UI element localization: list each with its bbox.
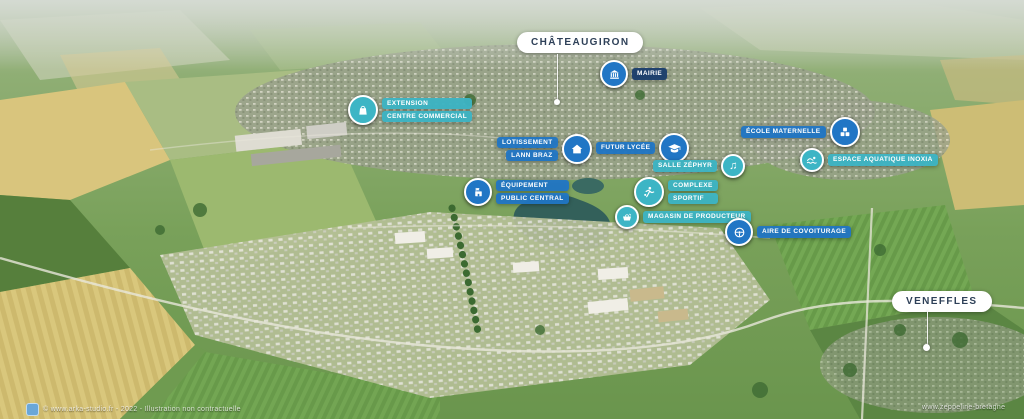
marker-espace-aquatique-inoxia: ESPACE AQUATIQUE INOXIA (800, 148, 938, 172)
aerial-masterplan-view: CHÂTEAUGIRON VENEFFLES EXTENSION CENTRE … (0, 0, 1024, 419)
marker-equipement-public-central: ÉQUIPEMENT PUBLIC CENTRAL (464, 178, 569, 206)
marker-extension-centre-commercial: EXTENSION CENTRE COMMERCIAL (348, 95, 472, 125)
place-label-text: CHÂTEAUGIRON (531, 37, 629, 48)
steering-wheel-icon (725, 218, 753, 246)
marker-label: SALLE ZÉPHYR (653, 160, 717, 171)
marker-label: PUBLIC CENTRAL (496, 193, 569, 204)
aerial-photo-background (0, 0, 1024, 419)
chateaugiron-pointer-line (557, 54, 558, 101)
swimmer-icon (800, 148, 824, 172)
marker-aire-de-covoiturage: AIRE DE COVOITURAGE (725, 218, 851, 246)
place-label-chateaugiron: CHÂTEAUGIRON (517, 32, 643, 53)
toy-blocks-icon (830, 117, 860, 147)
credit-left-text: © www.arka-studio.fr - 2022 - Illustrati… (43, 406, 241, 413)
marker-label: ÉCOLE MATERNELLE (741, 126, 826, 137)
credit-right-text: www.zeppeline-bretagne (922, 404, 1005, 411)
marker-salle-zephyr: SALLE ZÉPHYR ♫ (653, 154, 745, 178)
produce-basket-icon (615, 205, 639, 229)
marker-label: MAIRIE (632, 68, 667, 79)
marker-label: FUTUR LYCÉE (596, 142, 655, 153)
marker-label: EXTENSION (382, 98, 472, 109)
marker-label: CENTRE COMMERCIAL (382, 111, 472, 122)
marker-lotissement-lann-braz: LOTISSEMENT LANN BRAZ (497, 134, 592, 164)
place-label-text: VENEFFLES (906, 296, 978, 307)
athlete-icon (634, 177, 664, 207)
studio-logo (26, 403, 39, 416)
veneffles-pointer-dot (923, 344, 930, 351)
marker-label: COMPLEXE (668, 180, 718, 191)
shopping-bag-icon (348, 95, 378, 125)
veneffles-pointer-line (927, 311, 928, 345)
marker-label: ÉQUIPEMENT (496, 180, 569, 191)
marker-complexe-sportif: COMPLEXE SPORTIF (634, 177, 718, 207)
public-building-icon (464, 178, 492, 206)
marker-mairie: MAIRIE (600, 60, 667, 88)
credit-left: © www.arka-studio.fr - 2022 - Illustrati… (26, 403, 241, 416)
music-notes-icon: ♫ (721, 154, 745, 178)
credit-right: www.zeppeline-bretagne (922, 404, 1005, 411)
chateaugiron-pointer-dot (554, 99, 560, 105)
house-icon (562, 134, 592, 164)
town-hall-icon (600, 60, 628, 88)
marker-label: LANN BRAZ (506, 150, 558, 161)
marker-label: LOTISSEMENT (497, 137, 558, 148)
marker-label: AIRE DE COVOITURAGE (757, 226, 851, 237)
marker-ecole-maternelle: ÉCOLE MATERNELLE (741, 117, 860, 147)
marker-label: SPORTIF (668, 193, 718, 204)
place-label-veneffles: VENEFFLES (892, 291, 992, 312)
marker-label: ESPACE AQUATIQUE INOXIA (828, 154, 938, 165)
